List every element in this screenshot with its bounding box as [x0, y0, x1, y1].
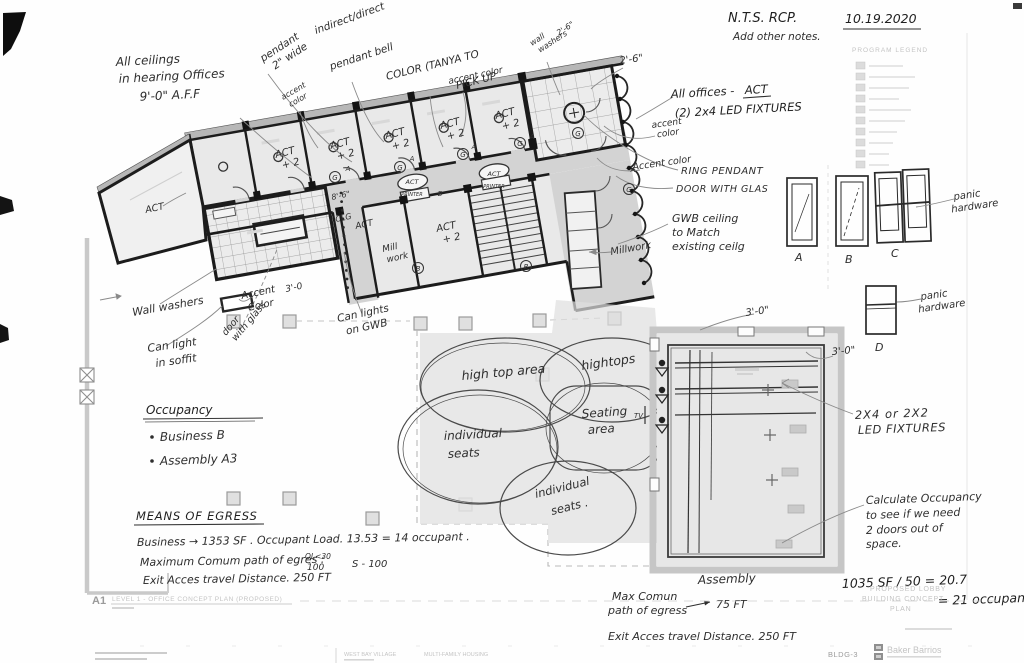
- keynote-g: G: [626, 186, 632, 194]
- note-add-other: Add other notes.: [732, 31, 821, 43]
- note-pendant-bell: pendant bell: [327, 41, 394, 73]
- egress-line2: Maximum Comum path of egres :: [140, 553, 325, 569]
- door-tag-a: A: [345, 165, 351, 173]
- project-type: MULTI-FAMILY HOUSING: [424, 652, 488, 658]
- assembly-title: Assembly: [697, 571, 757, 587]
- door-label-b: B: [845, 253, 853, 266]
- note-calc-2: to see if we need: [866, 506, 962, 522]
- egress-block: MEANS OF EGRESS Business → 1353 SF . Occ…: [134, 509, 470, 587]
- occupancy-business: Business B: [160, 428, 225, 444]
- note-all-offices-act: ACT: [743, 82, 769, 97]
- note-in-soffit: in soffit: [155, 351, 198, 370]
- door-elevations: [787, 169, 931, 334]
- label-dim-3-0: 3'-0: [285, 282, 304, 295]
- printer-act-label: ACT: [487, 170, 502, 178]
- note-ring-pendant: RING PENDANT: [681, 166, 764, 177]
- note-dim-2-6: 2'-6": [619, 53, 644, 67]
- printer-label: PRINTER: [401, 192, 422, 198]
- note-all-offices: All offices -: [669, 84, 734, 101]
- note-calc-4: space.: [866, 537, 902, 551]
- assembly-exit: Exit Acces travel Distance. 250 FT: [608, 630, 797, 643]
- note-indirect: indirect/direct: [313, 0, 387, 37]
- note-gwb-3: existing ceilg: [672, 240, 745, 253]
- keynote-g: G: [575, 130, 581, 138]
- title-block: A1 LEVEL 1 - OFFICE CONCEPT PLAN (PROPOS…: [92, 586, 1005, 663]
- tv-label: TV: [634, 412, 644, 420]
- dim-3-0-top: 3'-0": [745, 305, 770, 319]
- note-door-with-glas: DOOR WITH GLAS: [676, 184, 768, 195]
- door-elevation-a: [787, 178, 817, 246]
- occupancy-assembly: Assembly A3: [159, 451, 238, 468]
- label-individual-1b: seats: [447, 445, 480, 461]
- note-gwb-2: to Match: [672, 226, 720, 239]
- legend-title: PROGRAM LEGEND: [852, 47, 928, 54]
- door-label-c: C: [891, 247, 899, 260]
- sheet-ref: A1: [92, 595, 106, 607]
- scanned-concept-plan-sheet: PROGRAM LEGEND: [0, 0, 1024, 663]
- titleblock-fineprint-bars: [95, 652, 167, 660]
- note-ceilings-1: All ceilings: [114, 52, 180, 69]
- assembly-room: [650, 327, 841, 570]
- note-ceilings-3: 9'-0" A.F.F: [139, 87, 201, 104]
- door-label-a: A: [794, 251, 803, 264]
- keynote-b: B: [416, 265, 421, 273]
- note-accent-1b: color: [656, 127, 681, 140]
- sheet-title: LEVEL 1 - OFFICE CONCEPT PLAN (PROPOSED): [112, 596, 282, 603]
- note-calc-3: 2 doors out of: [866, 521, 945, 537]
- print-proposed-lobby: PROPOSED LOBBY: [870, 586, 946, 593]
- plan-drawing: PROGRAM LEGEND: [0, 0, 1024, 663]
- egress-line2-s100: S - 100: [352, 559, 387, 570]
- keynote-g: G: [397, 164, 403, 172]
- note-2x4-fixtures: (2) 2x4 LED FIXTURES: [674, 99, 802, 120]
- note-led-1: 2X4 or 2X2: [855, 405, 930, 422]
- keynote-g: G: [332, 174, 338, 182]
- door-elevation-d: [866, 286, 896, 334]
- note-date: 10.19.2020: [845, 11, 917, 26]
- occupancy-block: Occupancy Business B Assembly A3: [143, 403, 263, 468]
- print-building-concept: BUILDING CONCEPT: [862, 596, 944, 603]
- door-elevation-b: [836, 176, 868, 246]
- note-calc-1: Calculate Occupancy: [866, 490, 983, 507]
- firm-logo-icon: [874, 644, 883, 660]
- note-ceilings-2: in hearing Offices: [118, 66, 225, 86]
- program-legend: PROGRAM LEGEND: [852, 47, 928, 168]
- door-tag-b: B: [438, 190, 443, 198]
- keynote-b: B: [524, 263, 529, 271]
- assembly-egress-block: Assembly Max Comun path of egress 75 FT …: [607, 571, 797, 643]
- note-nts-rcp: N.T.S. RCP.: [728, 11, 797, 26]
- left-wing: [97, 134, 206, 263]
- assembly-path: path of egress: [607, 604, 687, 617]
- printer-label: PRINTER: [483, 184, 504, 190]
- note-led-2: LED FIXTURES: [858, 420, 947, 437]
- door-label-d: D: [875, 341, 883, 354]
- keynote-g: G: [517, 140, 523, 148]
- door-tag-a: A: [409, 155, 415, 163]
- label-seating-area: area: [587, 421, 615, 437]
- occupancy-title: Occupancy: [146, 403, 213, 417]
- seating-zone: [398, 300, 684, 555]
- door-tag-a: A: [529, 133, 535, 141]
- printer-act-label: ACT: [405, 178, 420, 186]
- door-tag-a: A: [471, 143, 477, 151]
- note-gwb-1: GWB ceiling: [672, 212, 738, 225]
- dim-3-0-right: 3'-0": [831, 345, 856, 358]
- print-plan: PLAN: [890, 606, 912, 613]
- egress-line2-sup: OL<30: [305, 552, 331, 561]
- keynote-g: G: [460, 151, 466, 159]
- firm-name: Baker Barrios: [887, 645, 942, 655]
- egress-title: MEANS OF EGRESS: [136, 509, 258, 523]
- calc-line2: = 21 occupant: [938, 590, 1024, 608]
- entry-millwork-cabinet: [565, 191, 602, 289]
- note-wall-washers: Wall washers: [131, 294, 205, 319]
- egress-line3: Exit Acces travel Distance. 250 FT: [143, 571, 332, 587]
- sheet-number: BLDG-3: [828, 650, 858, 659]
- egress-line1: Business → 1353 SF . Occupant Load. 13.5…: [137, 530, 470, 549]
- door-tag-a: A: [630, 166, 636, 174]
- project-name: WEST BAY VILLAGE: [344, 652, 397, 658]
- assembly-75ft: 75 FT: [716, 598, 748, 611]
